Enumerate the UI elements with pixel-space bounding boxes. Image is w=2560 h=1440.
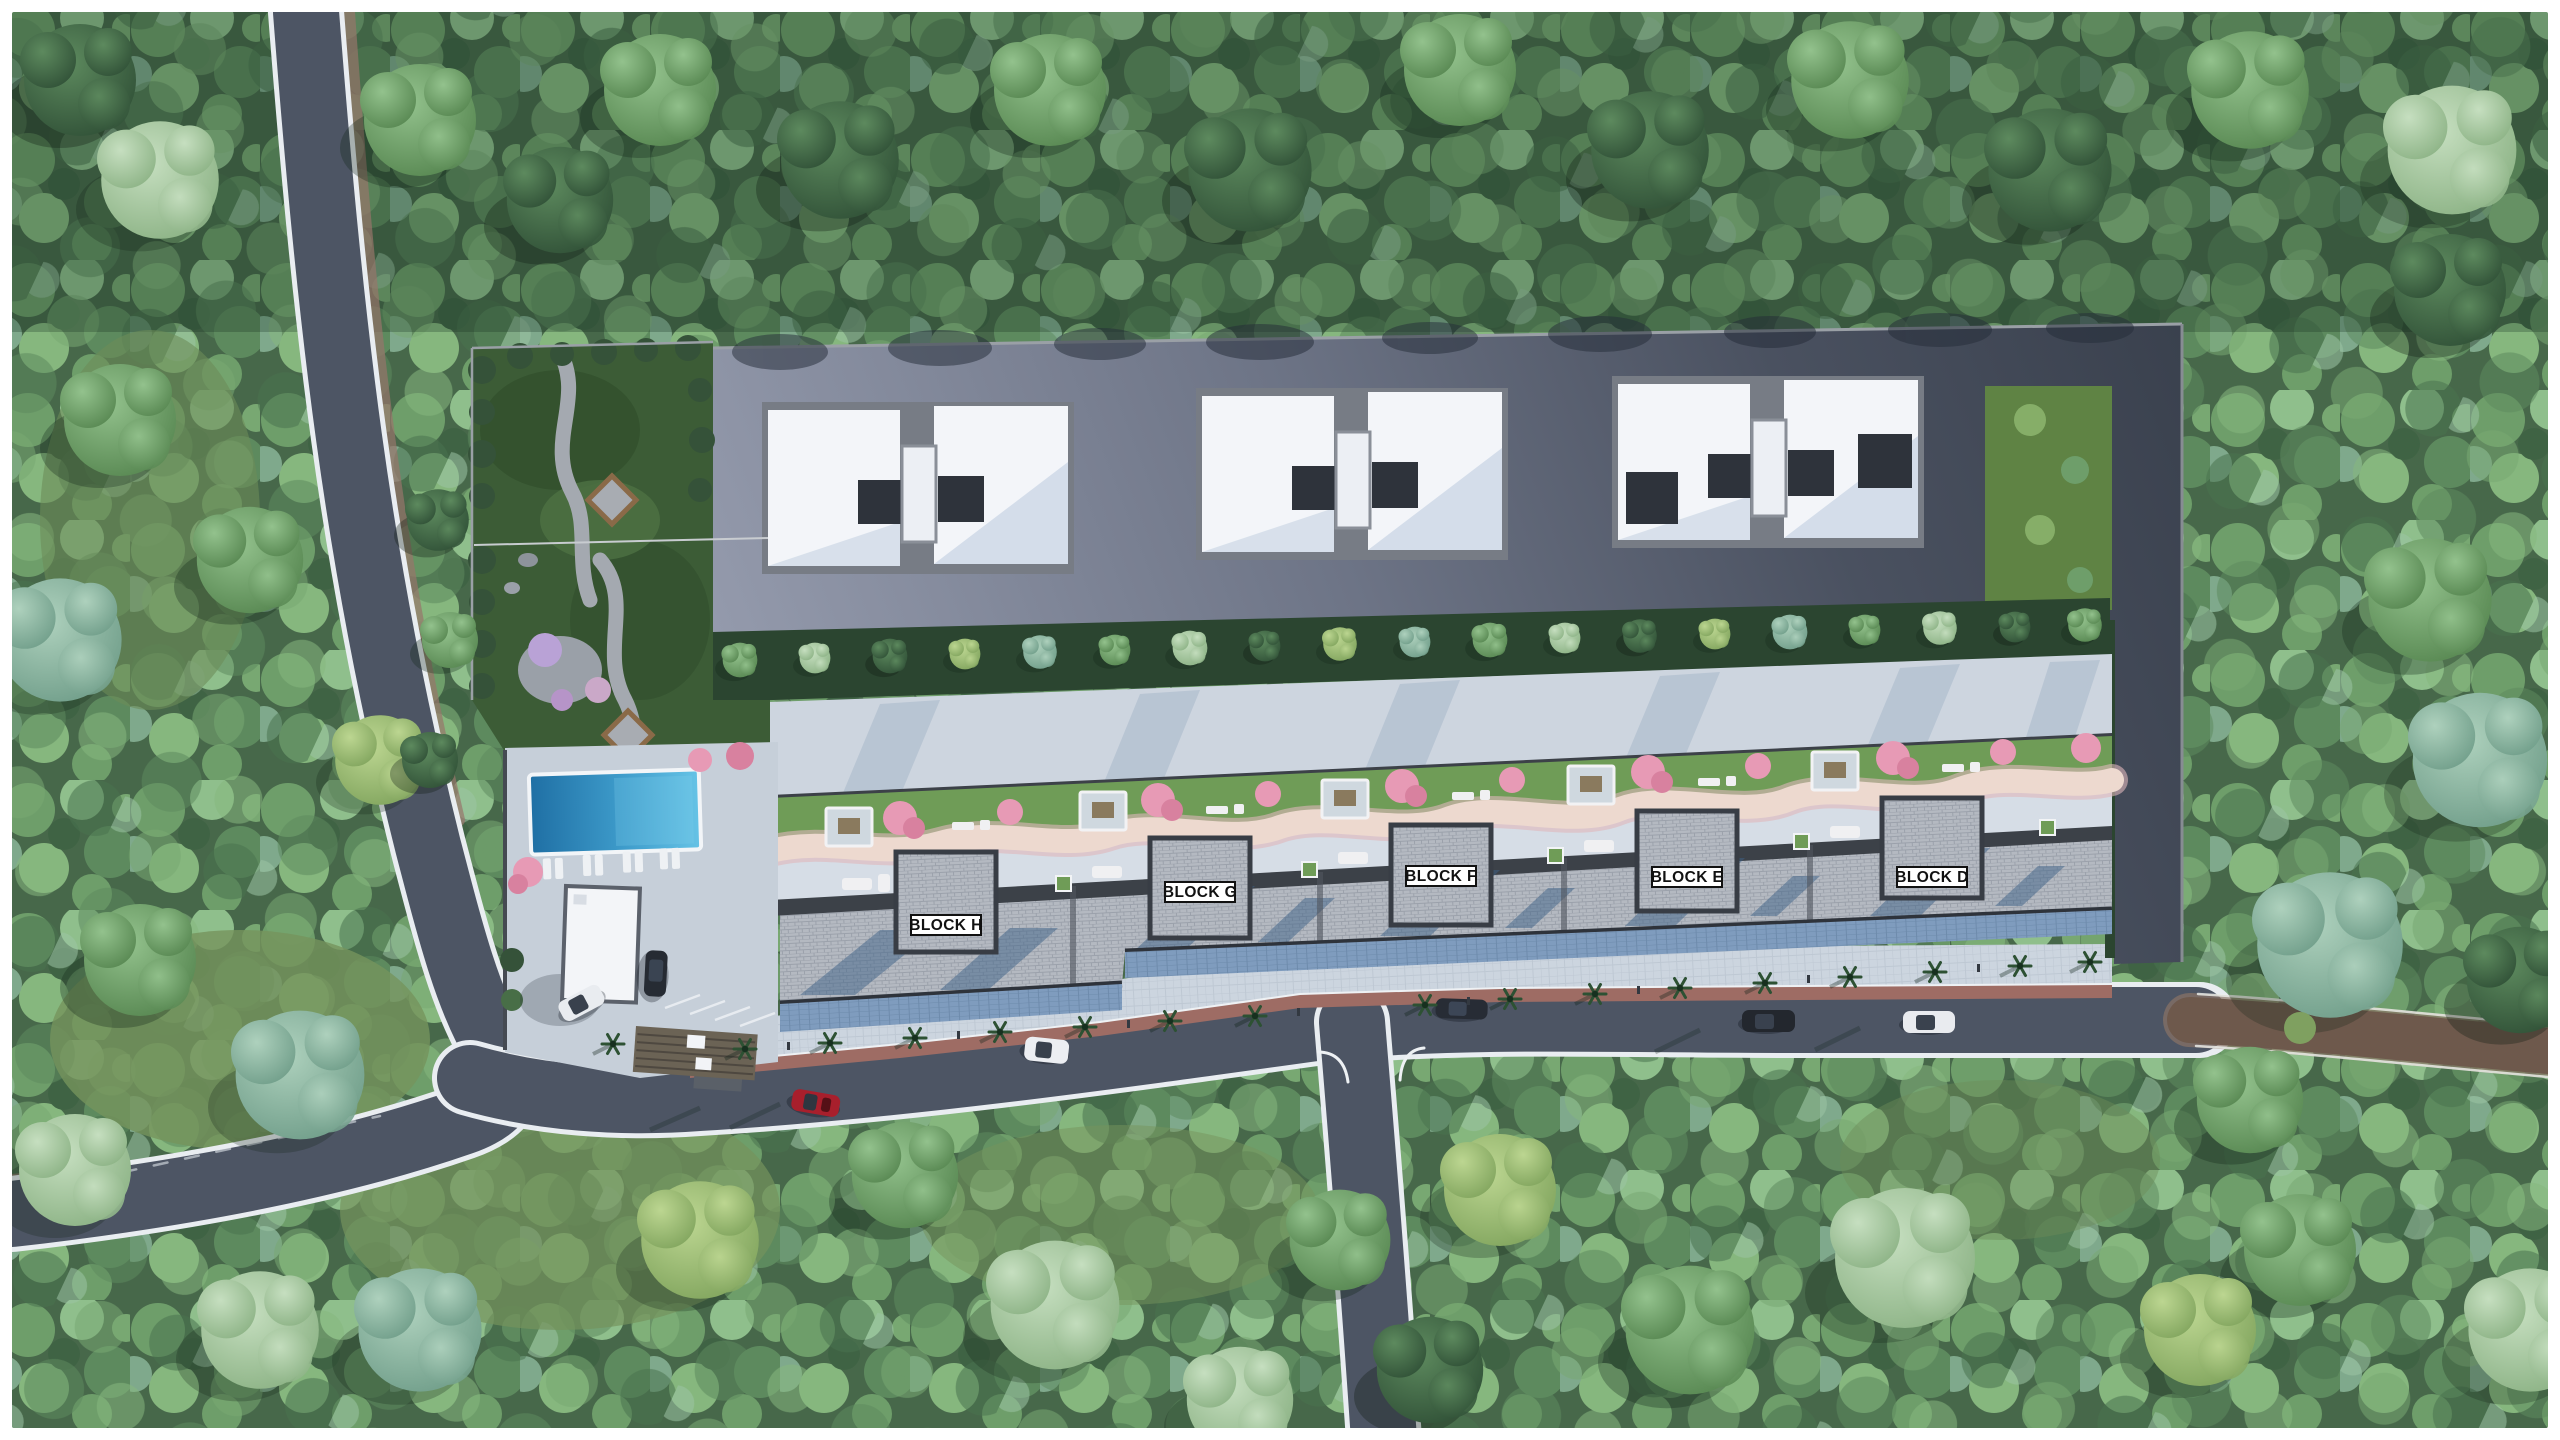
block-e-label-text: BLOCK E	[1651, 869, 1724, 886]
east-lawn	[1985, 386, 2112, 610]
aerial-render-canvas: BLOCK H BLOCK G BLOCK F BLOCK E BLOCK D	[0, 0, 2560, 1440]
block-e-label: BLOCK E	[1651, 867, 1724, 887]
elevator-core	[902, 446, 936, 542]
clubhouse	[562, 886, 640, 1003]
rear-building-3	[1612, 376, 1924, 548]
block-d-label-text: BLOCK D	[1895, 869, 1968, 886]
rear-building-2	[1196, 388, 1508, 560]
elevator-core	[1752, 420, 1786, 516]
pergola	[1322, 780, 1368, 818]
rear-buildings	[762, 376, 1924, 574]
block-f-label: BLOCK F	[1405, 866, 1477, 886]
block-d-label: BLOCK D	[1895, 867, 1968, 887]
block-h-label-text: BLOCK H	[909, 917, 982, 934]
pergola	[1080, 792, 1126, 830]
pool-zone	[500, 742, 778, 1092]
pergola	[1812, 752, 1858, 790]
pergola	[1568, 766, 1614, 804]
meadow-patch	[920, 1125, 1320, 1305]
site-plan-render: BLOCK H BLOCK G BLOCK F BLOCK E BLOCK D	[0, 0, 2560, 1440]
roadside-shrub	[2284, 1012, 2316, 1044]
block-g-label: BLOCK G	[1163, 882, 1237, 902]
elevator-core	[1336, 432, 1370, 528]
gate-kiosk	[695, 1057, 712, 1070]
pergola	[826, 808, 872, 846]
dark-car	[1738, 1010, 1795, 1034]
white-car	[1899, 1011, 1955, 1035]
block-g-label-text: BLOCK G	[1163, 884, 1237, 901]
rear-building-1	[762, 402, 1074, 574]
gate-kiosk	[687, 1035, 706, 1049]
block-h-label: BLOCK H	[909, 915, 982, 935]
swimming-pool	[529, 769, 701, 854]
block-f-label-text: BLOCK F	[1405, 868, 1477, 885]
